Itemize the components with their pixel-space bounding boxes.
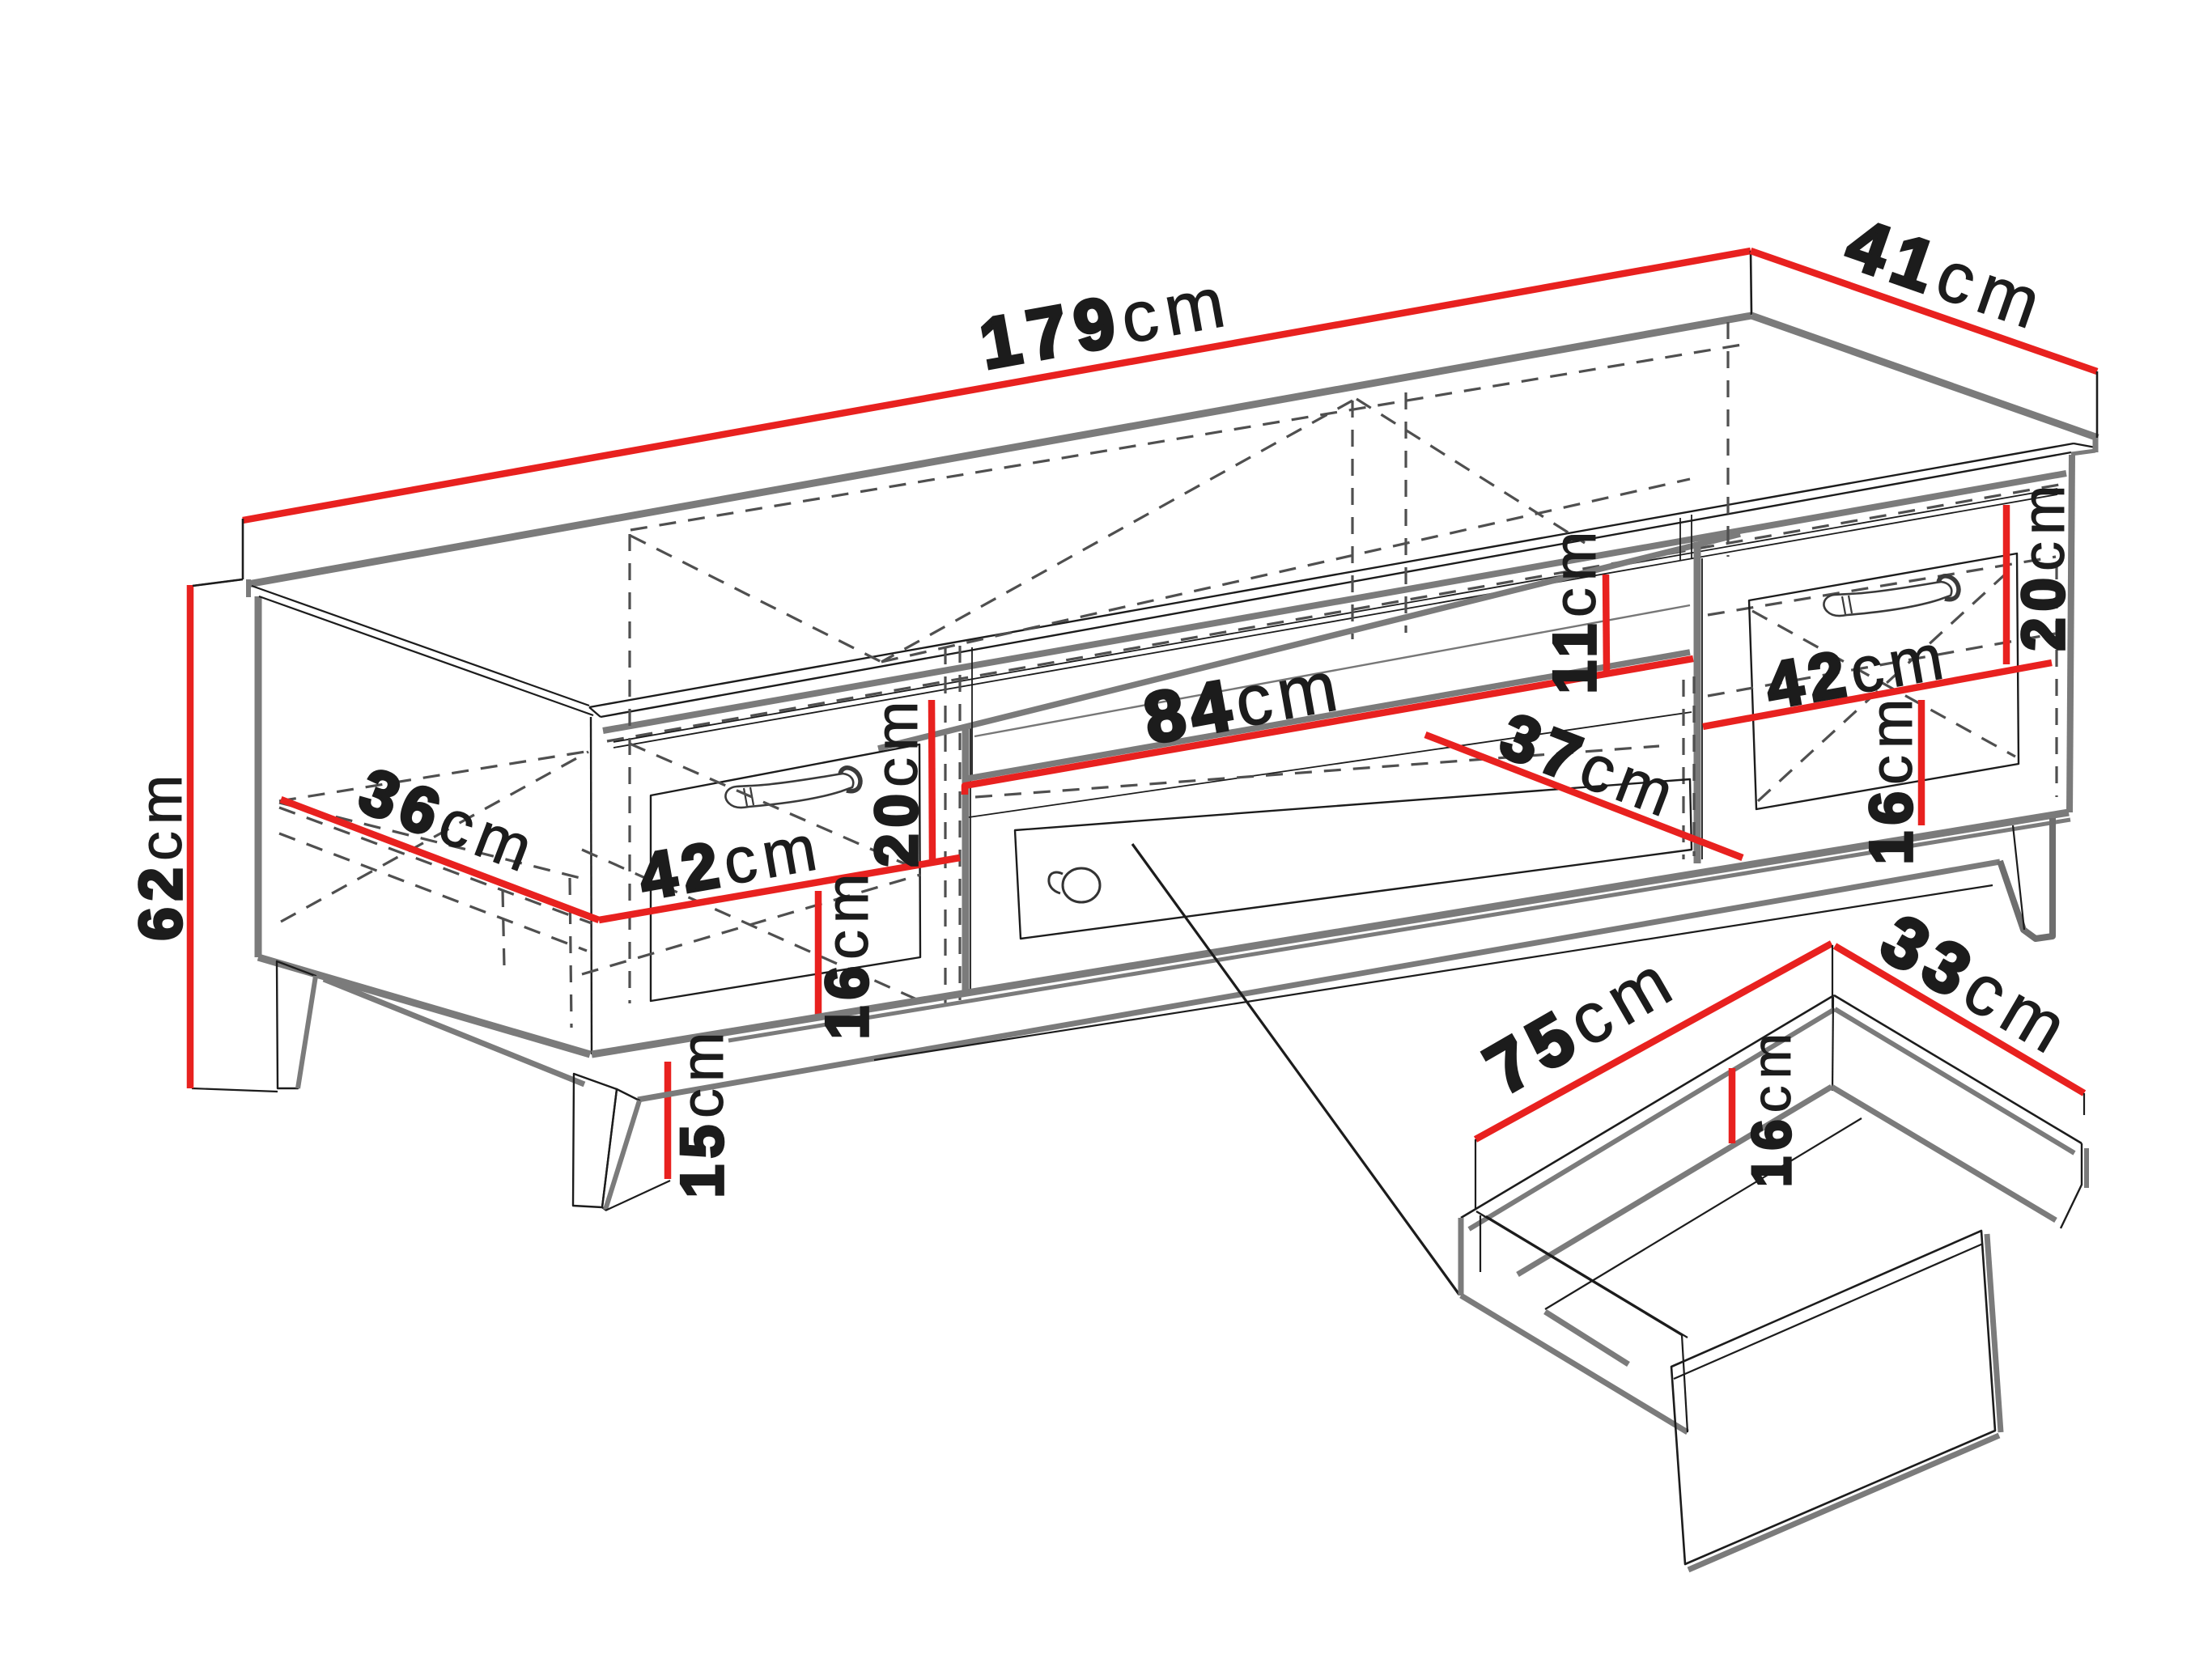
svg-text:16cm: 16cm (1857, 693, 1925, 865)
svg-text:20cm: 20cm (2010, 479, 2077, 651)
svg-text:16cm: 16cm (813, 867, 881, 1040)
svg-text:16cm: 16cm (1741, 1027, 1802, 1187)
svg-text:62cm: 62cm (127, 769, 194, 941)
svg-text:20cm: 20cm (863, 695, 930, 867)
svg-text:11cm: 11cm (1541, 525, 1608, 694)
svg-text:15cm: 15cm (669, 1026, 736, 1198)
